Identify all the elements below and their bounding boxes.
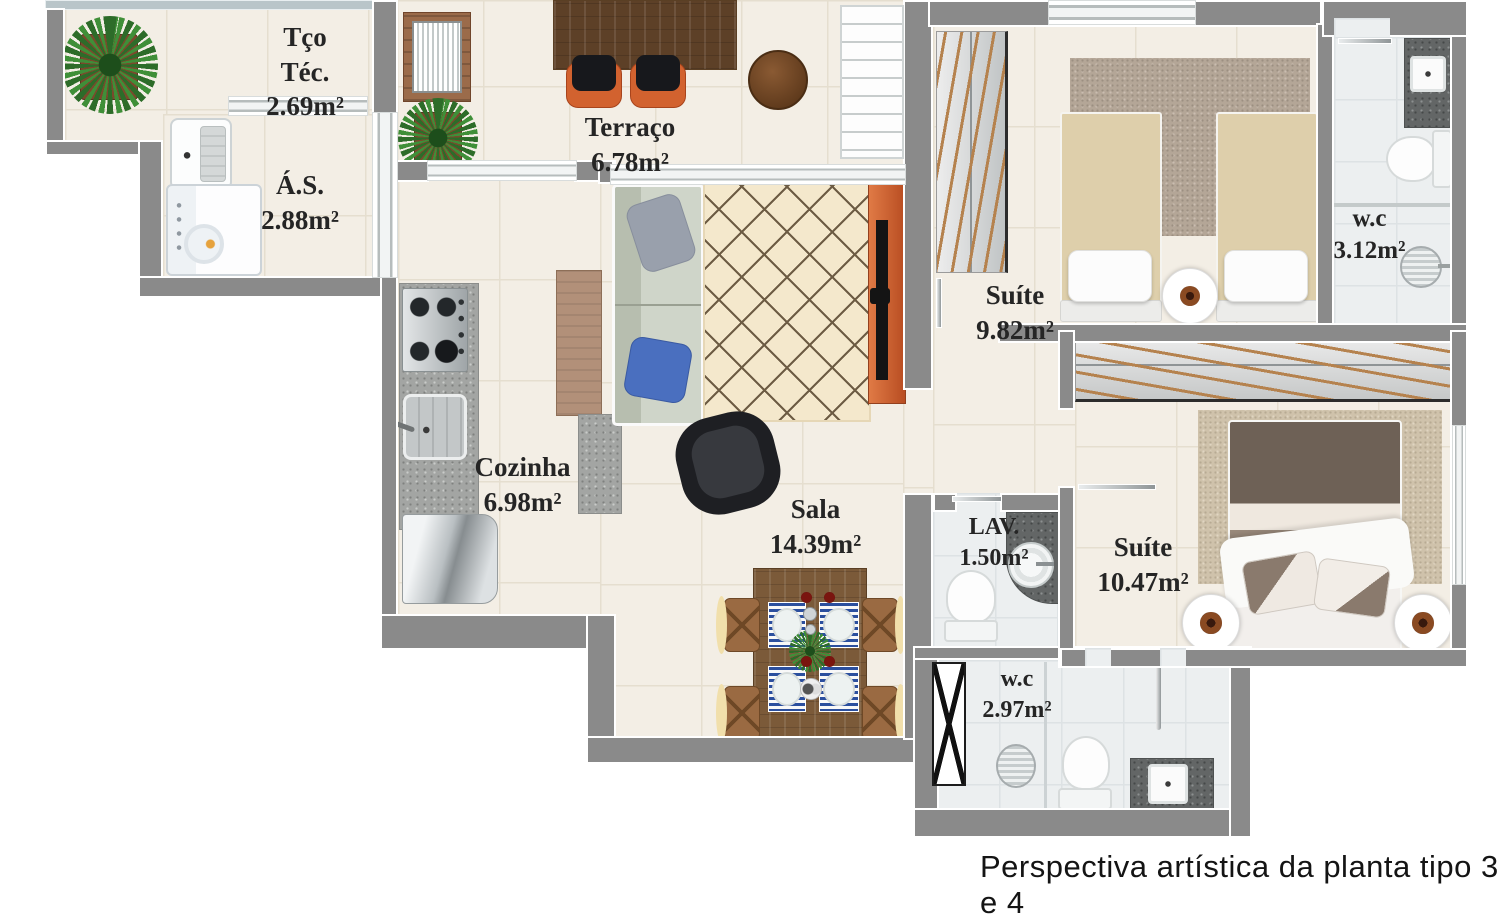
sliding-door xyxy=(372,112,398,278)
wine-glass xyxy=(801,592,812,603)
wall-segment xyxy=(45,140,145,156)
room-name: w.c xyxy=(958,664,1076,695)
wall-segment xyxy=(395,160,429,182)
shower-head xyxy=(996,744,1036,788)
door-opening xyxy=(1085,648,1111,666)
terrace-chair xyxy=(630,62,686,108)
toilet-tank xyxy=(944,620,998,642)
room-label-wc2: w.c 2.97m² xyxy=(958,664,1076,725)
room-name: Suíte xyxy=(945,278,1085,313)
rug xyxy=(703,176,871,422)
wall-segment xyxy=(1229,646,1252,838)
room-label-wc1: w.c 3.12m² xyxy=(1312,203,1427,267)
plan-caption: Perspectiva artística da planta tipo 3 e… xyxy=(980,849,1500,914)
washer-door xyxy=(184,224,224,264)
room-area: 6.78m² xyxy=(550,145,710,180)
room-label-lav: LAV. 1.50m² xyxy=(938,512,1050,573)
pillow xyxy=(1224,250,1308,302)
room-area: 2.69m² xyxy=(235,89,375,124)
dining-chair xyxy=(724,686,760,740)
wall-segment xyxy=(1000,493,1060,512)
wine-glass xyxy=(801,656,812,667)
room-name: Sala xyxy=(738,492,893,527)
room-label-suite2: Suíte 10.47m² xyxy=(1068,530,1218,599)
room-name: Á.S. xyxy=(230,168,370,203)
door-opening xyxy=(1334,18,1390,37)
dining-chair xyxy=(862,598,898,652)
pillow xyxy=(1313,557,1392,619)
wine-glass xyxy=(824,656,835,667)
toilet xyxy=(946,570,996,624)
room-area: 9.82m² xyxy=(945,313,1085,348)
door-leaf xyxy=(1338,38,1392,44)
door-leaf xyxy=(1078,484,1156,490)
fridge xyxy=(402,514,498,604)
room-name: LAV. xyxy=(938,512,1050,543)
room-area: 1.50m² xyxy=(938,543,1050,574)
room-label-terraco: Terraço 6.78m² xyxy=(550,110,710,179)
bathroom-sink xyxy=(1410,56,1446,92)
room-name: Tço Téc. xyxy=(235,20,375,89)
room-name: Terraço xyxy=(550,110,710,145)
dining-chair xyxy=(862,686,898,740)
room-area: 6.98m² xyxy=(440,485,605,520)
shower-rail xyxy=(1156,662,1161,730)
wall-segment xyxy=(1450,35,1468,335)
room-label-sala: Sala 14.39m² xyxy=(738,492,893,561)
carafe xyxy=(803,607,817,621)
room-label-tco-tec: Tço Téc. 2.69m² xyxy=(235,20,375,124)
laundry-sink-basin xyxy=(200,126,226,182)
wine-glass xyxy=(824,592,835,603)
floor-hall xyxy=(933,323,1075,500)
pass-counter-wood xyxy=(556,270,602,416)
room-area: 2.88m² xyxy=(230,203,370,238)
toilet xyxy=(1386,136,1436,182)
room-area: 10.47m² xyxy=(1068,565,1218,600)
toilet-tank xyxy=(1432,130,1452,188)
stove xyxy=(402,288,468,372)
sofa-pillow-blue xyxy=(622,335,693,405)
bathroom-sink xyxy=(1148,764,1188,804)
wardrobe xyxy=(936,31,1008,273)
window-ledge xyxy=(45,0,373,10)
terrace-round-table xyxy=(748,50,808,110)
window xyxy=(1452,425,1466,585)
room-label-cozinha: Cozinha 6.98m² xyxy=(440,450,605,519)
wall-segment xyxy=(903,0,933,390)
room-name: Cozinha xyxy=(440,450,605,485)
room-name: w.c xyxy=(1312,203,1427,235)
wall-segment xyxy=(138,276,384,298)
wall-segment xyxy=(1316,23,1334,335)
bed-frame xyxy=(1216,300,1318,322)
carafe xyxy=(805,624,816,635)
wall-segment xyxy=(380,276,398,638)
window xyxy=(1048,0,1196,25)
nightstand xyxy=(1394,594,1452,652)
room-label-as: Á.S. 2.88m² xyxy=(230,168,370,237)
terrace-chair xyxy=(566,62,622,108)
grill-grate xyxy=(412,21,462,93)
wall-segment xyxy=(372,0,398,115)
condiment-set xyxy=(800,678,822,700)
toilet xyxy=(1062,736,1110,790)
room-name: Suíte xyxy=(1068,530,1218,565)
nightstand xyxy=(1162,268,1218,324)
wall-segment xyxy=(380,614,594,650)
door-leaf xyxy=(936,278,942,328)
door-leaf xyxy=(952,496,1002,502)
wall-segment xyxy=(45,8,65,158)
room-area: 2.97m² xyxy=(958,695,1076,726)
placemat xyxy=(819,666,859,712)
nightstand xyxy=(1182,594,1240,652)
wall-segment xyxy=(913,808,1252,838)
dining-chair xyxy=(724,598,760,652)
wall-segment xyxy=(138,140,163,292)
room-label-suite1: Suíte 9.82m² xyxy=(945,278,1085,347)
door-opening xyxy=(1160,648,1186,666)
folding-door xyxy=(840,5,904,159)
wall-segment xyxy=(586,736,936,764)
toilet-tank xyxy=(1058,788,1112,810)
plant-icon xyxy=(62,16,158,114)
room-area: 3.12m² xyxy=(1312,235,1427,267)
room-area: 14.39m² xyxy=(738,527,893,562)
tv-stand xyxy=(870,288,890,304)
floor-plan: Tço Téc. 2.69m² Á.S. 2.88m² Terraço 6.78… xyxy=(0,0,1500,914)
wall-segment xyxy=(1060,648,1468,668)
